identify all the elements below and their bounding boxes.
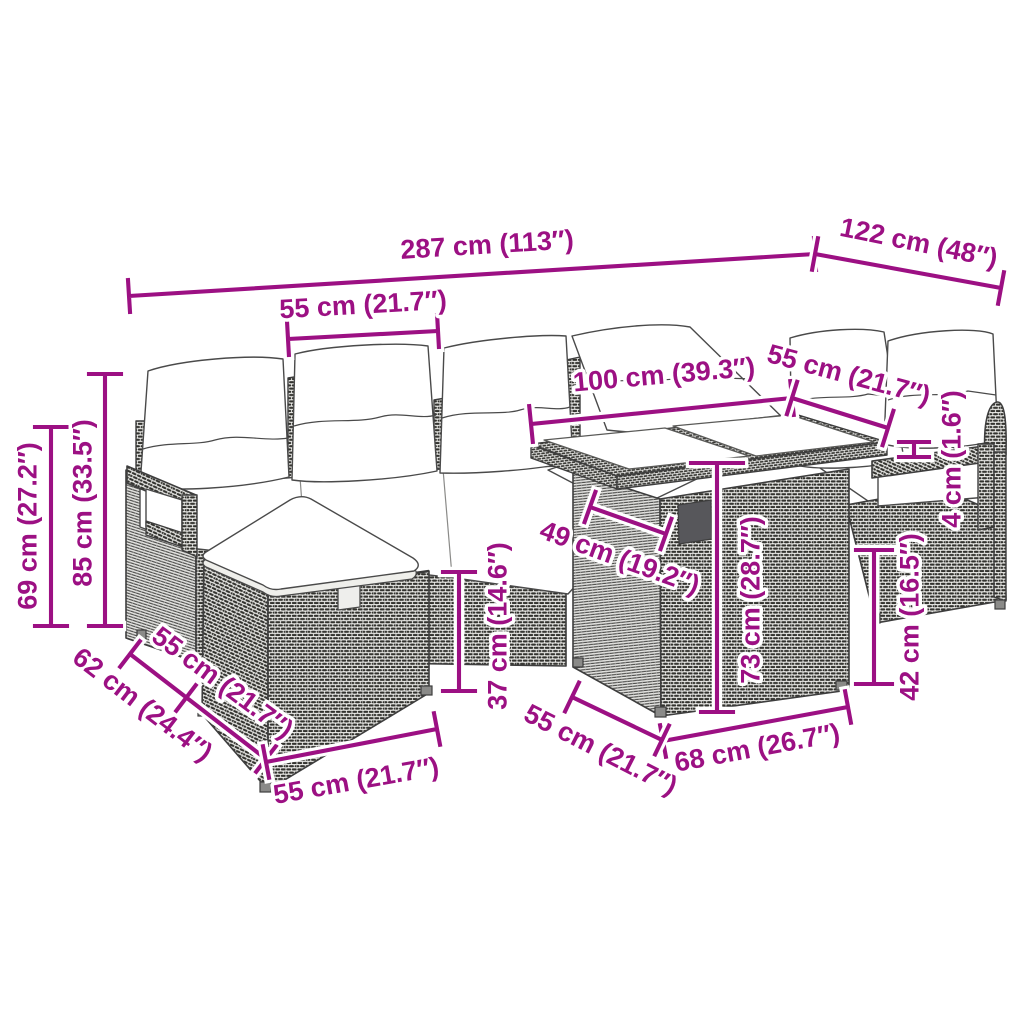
svg-text:73 cm (28.7″): 73 cm (28.7″) (736, 516, 766, 684)
svg-text:37 cm (14.6″): 37 cm (14.6″) (483, 542, 513, 710)
svg-text:42 cm (16.5″): 42 cm (16.5″) (895, 533, 925, 701)
svg-text:4 cm (1.6″): 4 cm (1.6″) (937, 390, 967, 528)
svg-text:85 cm (33.5″): 85 cm (33.5″) (68, 419, 98, 587)
svg-text:69 cm (27.2″): 69 cm (27.2″) (13, 442, 43, 610)
